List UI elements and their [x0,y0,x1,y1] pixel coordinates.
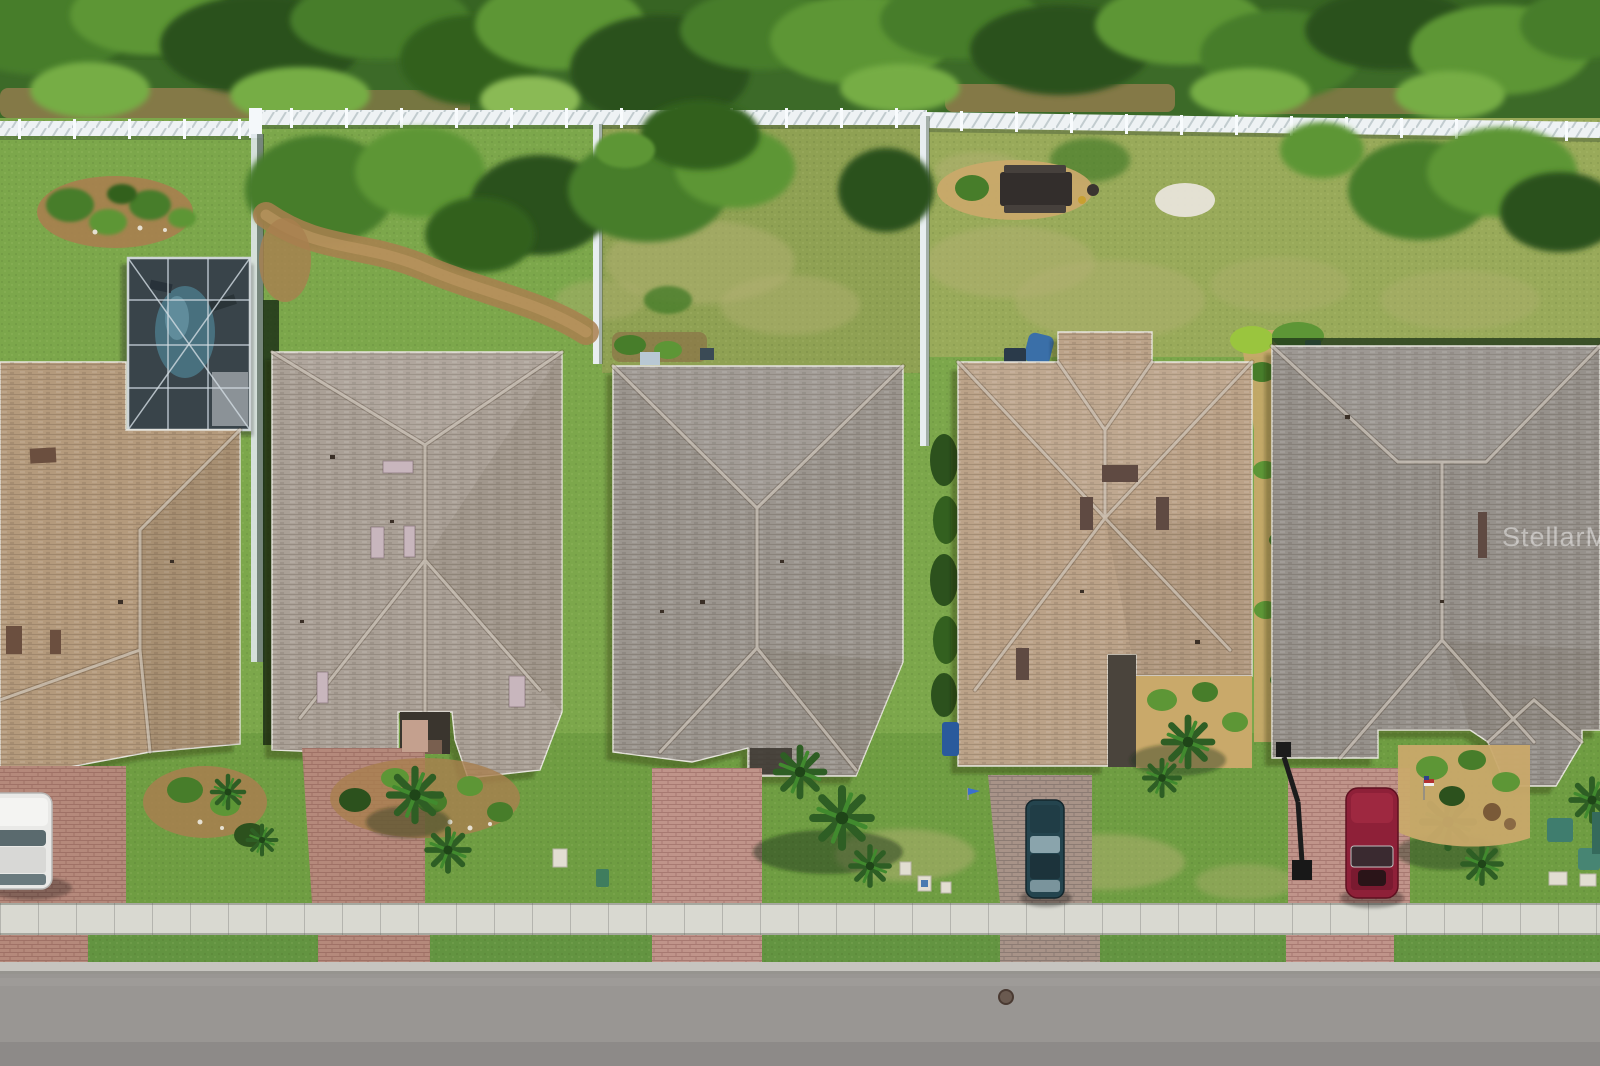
sidewalk [0,903,1600,935]
house-5 [1265,346,1600,794]
house-3 [606,366,903,784]
watermark: StellarMLS [1502,522,1600,552]
tree-canopy [0,0,1600,125]
blue-bin [942,722,959,756]
road [0,974,1600,1066]
pool-enclosure [121,258,253,436]
house4-entry-walkway [1108,655,1136,767]
red-car [1340,788,1404,908]
teal-car [1020,800,1072,907]
sand-patch [1155,183,1215,217]
curb [0,962,1600,974]
manhole-cover [999,990,1013,1004]
front-walk-house3 [652,768,762,905]
aerial-photo: StellarMLS [0,0,1600,1066]
lot5-front-bed [1398,745,1530,847]
